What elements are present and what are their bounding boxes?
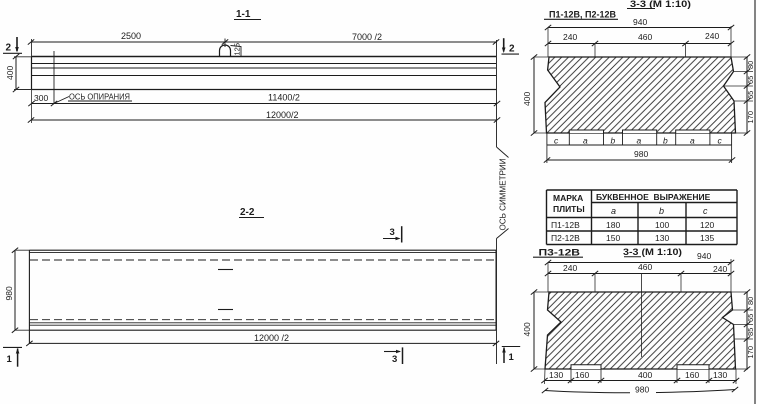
svg-text:130: 130: [713, 370, 727, 380]
svg-text:65: 65: [746, 314, 755, 322]
svg-text:1-1: 1-1: [236, 9, 251, 20]
svg-text:МАРКА: МАРКА: [553, 193, 583, 203]
svg-text:240: 240: [713, 264, 727, 274]
svg-text:c: c: [703, 206, 708, 216]
svg-text:12000/2: 12000/2: [266, 110, 299, 120]
svg-text:1: 1: [509, 352, 515, 363]
svg-text:135: 135: [700, 233, 714, 243]
svg-text:3: 3: [392, 354, 397, 365]
svg-text:c: c: [718, 135, 723, 145]
svg-text:980: 980: [4, 286, 14, 300]
svg-text:460: 460: [638, 32, 652, 42]
svg-text:130: 130: [655, 233, 669, 243]
svg-text:160: 160: [575, 370, 589, 380]
svg-text:2: 2: [6, 43, 12, 54]
svg-text:980: 980: [634, 149, 648, 159]
svg-text:65: 65: [746, 76, 755, 84]
svg-text:c: c: [554, 135, 559, 145]
svg-text:240: 240: [563, 32, 577, 42]
svg-text:150: 150: [606, 233, 620, 243]
svg-text:980: 980: [635, 385, 649, 395]
svg-text:П1-12В: П1-12В: [551, 220, 580, 230]
svg-text:12000 /2: 12000 /2: [254, 333, 289, 343]
svg-text:400: 400: [522, 92, 532, 106]
svg-text:80: 80: [746, 61, 755, 69]
svg-text:940: 940: [697, 251, 711, 261]
svg-text:240: 240: [563, 263, 577, 273]
svg-text:240: 240: [705, 31, 719, 41]
svg-text:11400/2: 11400/2: [268, 93, 300, 103]
svg-text:125: 125: [233, 43, 242, 56]
svg-text:120: 120: [700, 220, 714, 230]
svg-text:130: 130: [549, 370, 563, 380]
svg-text:80: 80: [746, 297, 755, 305]
svg-text:a: a: [611, 206, 616, 216]
svg-text:a: a: [637, 135, 642, 145]
svg-text:П2-12В: П2-12В: [551, 233, 580, 243]
svg-text:400: 400: [5, 66, 15, 80]
svg-text:П1-12В, П2-12В: П1-12В, П2-12В: [549, 10, 616, 20]
svg-text:85: 85: [746, 328, 755, 336]
svg-text:b: b: [659, 206, 664, 216]
svg-text:b: b: [611, 135, 616, 145]
svg-text:БУКВЕННОЕ ВЫРАЖЕНИЕ: БУКВЕННОЕ ВЫРАЖЕНИЕ: [596, 192, 711, 202]
svg-text:3: 3: [390, 227, 395, 238]
svg-text:ОСЬ ОПИРАНИЯ: ОСЬ ОПИРАНИЯ: [69, 93, 130, 102]
svg-text:2-2: 2-2: [240, 207, 255, 218]
svg-text:400: 400: [638, 370, 652, 380]
svg-text:2500: 2500: [121, 31, 141, 41]
svg-text:ПЛИТЫ: ПЛИТЫ: [553, 204, 585, 214]
svg-text:160: 160: [685, 370, 699, 380]
svg-text:940: 940: [633, 17, 647, 27]
svg-text:65: 65: [746, 91, 755, 99]
svg-text:170: 170: [746, 111, 755, 124]
svg-text:300: 300: [34, 93, 48, 103]
svg-text:460: 460: [638, 262, 652, 272]
svg-text:400: 400: [522, 322, 532, 336]
svg-text:a: a: [690, 135, 695, 145]
svg-text:ОСЬ СИММЕТРИИ: ОСЬ СИММЕТРИИ: [499, 158, 508, 230]
svg-text:П3-12В: П3-12В: [539, 248, 581, 258]
svg-text:100: 100: [655, 220, 669, 230]
svg-text:180: 180: [606, 220, 620, 230]
svg-text:b: b: [663, 135, 668, 145]
svg-text:2: 2: [509, 44, 515, 55]
svg-text:1: 1: [7, 354, 13, 365]
svg-text:a: a: [583, 135, 588, 145]
svg-text:170: 170: [746, 346, 755, 359]
svg-text:7000 /2: 7000 /2: [352, 32, 382, 42]
